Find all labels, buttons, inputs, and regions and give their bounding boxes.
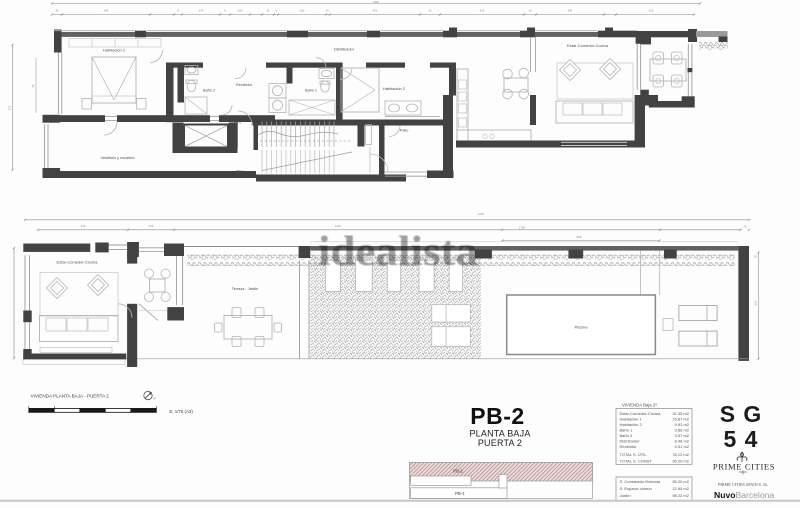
svg-text:1421: 1421 (335, 224, 342, 228)
svg-text:314: 314 (81, 224, 86, 228)
svg-text:Piscina: Piscina (575, 325, 589, 330)
svg-text:14: 14 (325, 9, 329, 13)
svg-text:Distribuidor: Distribuidor (334, 47, 355, 52)
svg-text:N: N (153, 397, 155, 401)
svg-text:Recibidor: Recibidor (236, 83, 253, 87)
svg-text:S G: S G (720, 401, 763, 427)
svg-text:PB-2: PB-2 (453, 469, 463, 474)
svg-text:2160: 2160 (478, 212, 485, 216)
svg-text:Vestíbulo y escalera: Vestíbulo y escalera (101, 156, 136, 160)
svg-text:PRIME CITIES SPAIN S. SL: PRIME CITIES SPAIN S. SL (718, 482, 768, 487)
svg-text:78.12 m2: 78.12 m2 (672, 452, 689, 457)
svg-text:15.87 m2: 15.87 m2 (672, 416, 689, 421)
svg-text:PLANTA BAJA: PLANTA BAJA (469, 429, 530, 439)
svg-text:Habitación 2: Habitación 2 (383, 86, 406, 91)
svg-text:Habitación 1: Habitación 1 (620, 416, 643, 421)
svg-text:226: 226 (149, 224, 154, 228)
svg-text:225: 225 (649, 9, 654, 13)
svg-text:9.83 m2: 9.83 m2 (675, 422, 690, 427)
svg-text:2162: 2162 (373, 0, 380, 4)
svg-text:Habitación 2: Habitación 2 (620, 422, 643, 427)
svg-text:Baño 1: Baño 1 (620, 427, 633, 432)
svg-text:Habitación 1: Habitación 1 (103, 48, 126, 53)
svg-text:3.86 m2: 3.86 m2 (675, 427, 690, 432)
svg-text:140: 140 (104, 9, 109, 13)
svg-text:Estar-Comedor-Cocina: Estar-Comedor-Cocina (567, 43, 609, 48)
svg-text:PB-1: PB-1 (455, 491, 465, 496)
svg-text:VIVIENDA Baja 2ª: VIVIENDA Baja 2ª (622, 403, 657, 408)
svg-text:120: 120 (238, 9, 243, 13)
svg-text:idealista: idealista (318, 229, 478, 275)
svg-text:PRIME CITIES: PRIME CITIES (713, 462, 775, 472)
svg-text:Estar-Comedor-Cocina: Estar-Comedor-Cocina (57, 259, 99, 264)
svg-text:PB-2: PB-2 (470, 403, 524, 429)
svg-text:Jardín: Jardín (620, 493, 631, 498)
svg-text:5 4: 5 4 (724, 426, 759, 452)
svg-text:Baño 2: Baño 2 (620, 433, 633, 438)
svg-text:900: 900 (577, 235, 582, 239)
svg-text:95.20 m2: 95.20 m2 (672, 459, 689, 464)
svg-text:PB-2: PB-2 (234, 120, 242, 124)
svg-text:S. Construida Vivienda: S. Construida Vivienda (620, 479, 661, 484)
svg-text:264: 264 (568, 9, 573, 13)
svg-text:32.35 m2: 32.35 m2 (672, 411, 689, 416)
svg-text:VIVIENDA PLANTA BAJA - PUERTA: VIVIENDA PLANTA BAJA - PUERTA 2 (31, 393, 110, 398)
svg-text:Patio: Patio (400, 129, 409, 133)
svg-text:650: 650 (754, 300, 758, 305)
svg-text:98.22 m2: 98.22 m2 (672, 493, 689, 498)
svg-text:3.57 m2: 3.57 m2 (675, 433, 690, 438)
svg-text:NuvoBarcelona: NuvoBarcelona (714, 490, 774, 500)
svg-text:TOTAL S. CONST: TOTAL S. CONST (620, 459, 653, 464)
svg-text:273: 273 (8, 105, 12, 110)
svg-text:4.51 m2: 4.51 m2 (675, 444, 690, 449)
svg-text:100: 100 (300, 9, 305, 13)
svg-text:421: 421 (373, 9, 378, 13)
svg-text:10: 10 (528, 9, 532, 13)
svg-text:Baño 1: Baño 1 (305, 89, 317, 93)
svg-text:S. Espacio común: S. Espacio común (620, 486, 652, 491)
svg-text:Terraza - Jardín: Terraza - Jardín (232, 287, 259, 291)
svg-text:Recibidor: Recibidor (620, 444, 638, 449)
svg-text:30: 30 (55, 9, 59, 13)
svg-text:PUERTA 2: PUERTA 2 (478, 438, 522, 448)
svg-text:Estar-Comedor-Cocina: Estar-Comedor-Cocina (620, 411, 662, 416)
svg-text:Distribuidor: Distribuidor (620, 438, 641, 443)
svg-text:15: 15 (266, 9, 270, 13)
svg-text:TOTAL S. ÚTIL: TOTAL S. ÚTIL (620, 452, 648, 457)
svg-text:95.20 m2: 95.20 m2 (672, 479, 689, 484)
svg-text:8.48 m2: 8.48 m2 (675, 438, 690, 443)
svg-text:326: 326 (480, 9, 485, 13)
svg-text:E: 1/75 (A3): E: 1/75 (A3) (169, 409, 193, 414)
svg-text:PB-1: PB-1 (236, 169, 244, 173)
svg-text:Baño 2: Baño 2 (203, 89, 215, 93)
svg-text:170: 170 (199, 9, 204, 13)
svg-text:12.94 m2: 12.94 m2 (672, 486, 689, 491)
svg-text:12: 12 (428, 9, 432, 13)
svg-text:75: 75 (743, 225, 747, 229)
svg-text:1750: 1750 (519, 226, 526, 230)
